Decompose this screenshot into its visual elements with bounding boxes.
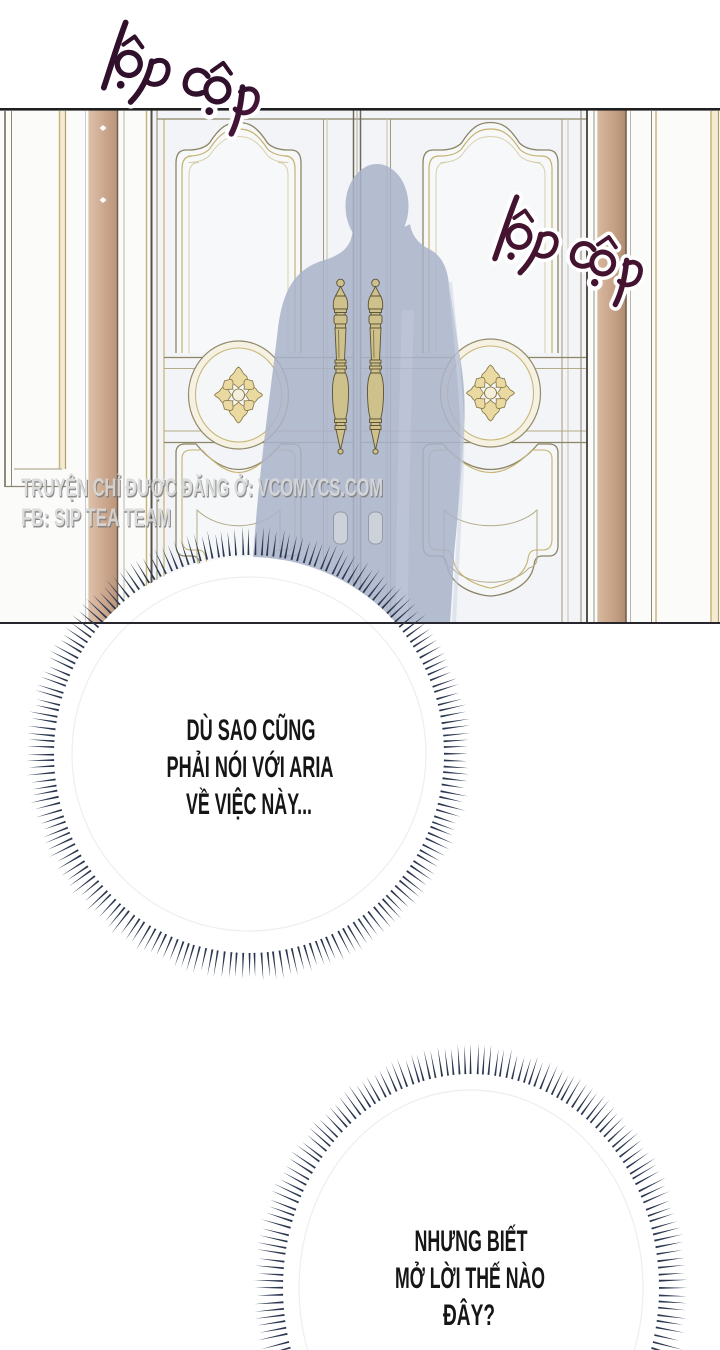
- svg-text:MỞ LỜI THẾ NÀO: MỞ LỜI THẾ NÀO: [395, 1261, 545, 1295]
- svg-text:PHẢI NÓI VỚI ARIA: PHẢI NÓI VỚI ARIA: [167, 750, 334, 784]
- svg-text:TRUYỆN CHỈ ĐƯỢC ĐĂNG Ở: VCOMYC: TRUYỆN CHỈ ĐƯỢC ĐĂNG Ở: VCOMYCS.COM: [21, 472, 383, 502]
- svg-text:ĐÂY?: ĐÂY?: [443, 1298, 495, 1332]
- svg-text:VỀ VIỆC NÀY...: VỀ VIỆC NÀY...: [186, 787, 312, 821]
- svg-text:NHƯNG BIẾT: NHƯNG BIẾT: [415, 1224, 528, 1258]
- svg-text:DÙ SAO CŨNG: DÙ SAO CŨNG: [187, 713, 316, 747]
- svg-text:FB: SIP TEA TEAM: FB: SIP TEA TEAM: [21, 504, 171, 532]
